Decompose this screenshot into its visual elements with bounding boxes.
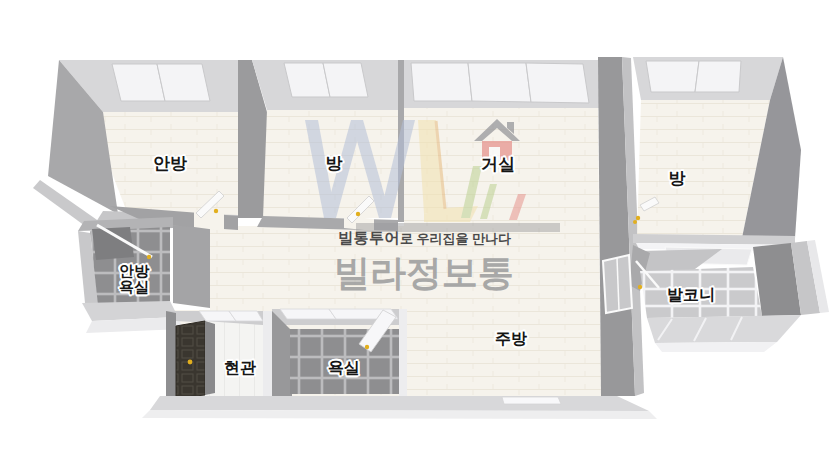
room-label-balcony: 발코니 [667, 285, 715, 306]
room-label-living-room: 거실 [481, 153, 515, 176]
watermark-tagline-bold: 빌통투어 [338, 229, 400, 246]
room-label-bathroom: 욕실 [328, 358, 360, 379]
corridor-wall [173, 218, 210, 308]
bottom-wall-window [502, 397, 561, 404]
door-handle [356, 212, 360, 216]
room-label-kitchen: 주방 [495, 329, 527, 350]
room-master-bedroom [33, 60, 238, 231]
door-handle [365, 345, 369, 349]
bedroom3-window [646, 61, 699, 92]
room-label-bedroom2: 방 [326, 152, 343, 175]
watermark-tagline: 빌통투어로 우리집을 만나다 [338, 229, 511, 248]
wall-divider-right [598, 57, 644, 396]
door-handle [638, 285, 642, 289]
door-handle [188, 360, 193, 365]
room-bedroom3 [633, 57, 801, 251]
room-label-entrance: 현관 [224, 358, 256, 379]
room-label-master-bedroom: 안방 [153, 152, 187, 175]
living-window [411, 63, 472, 101]
room-balcony [629, 240, 829, 352]
room-label-master-bath-line2: 욕실 [119, 279, 149, 295]
watermark-brand: 빌라정보통 [334, 249, 514, 298]
entrance-door [176, 321, 205, 398]
room-label-bedroom3: 방 [669, 167, 686, 190]
bedroom2-window [284, 63, 330, 97]
door-handle [633, 220, 637, 224]
kitchen-wall-window [603, 255, 632, 313]
master-bedroom-window [112, 64, 165, 101]
floorplan-stage: 빌통투어로 우리집을 만나다 빌라정보통 안방 방 거실 방 안방 욕실 현관 … [0, 0, 840, 472]
room-bathroom [272, 309, 407, 396]
door-handle [214, 209, 218, 213]
room-label-master-bath-line1: 안방 [119, 263, 149, 279]
room-label-master-bath: 안방 욕실 [119, 263, 149, 295]
watermark-tagline-rest: 로 우리집을 만나다 [400, 231, 511, 246]
bottom-wall [142, 396, 657, 419]
door-handle [636, 216, 640, 220]
door-handle [147, 255, 151, 259]
